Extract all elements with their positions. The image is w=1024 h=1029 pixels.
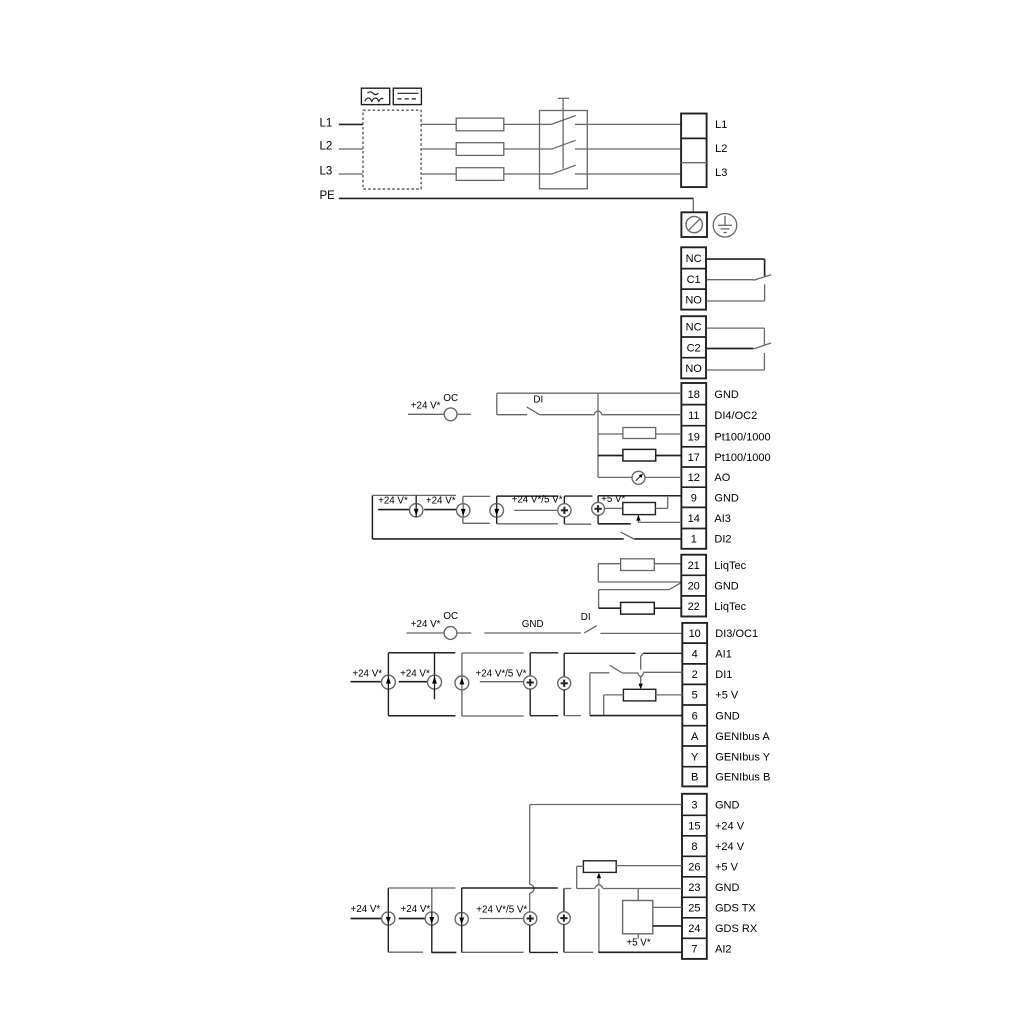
svg-text:2: 2 [692, 669, 698, 681]
svg-text:24: 24 [688, 923, 700, 935]
svg-text:20: 20 [688, 581, 700, 593]
svg-text:11: 11 [688, 410, 699, 422]
svg-text:+24 V*: +24 V* [426, 495, 456, 506]
svg-text:GDS TX: GDS TX [715, 903, 756, 915]
svg-text:3: 3 [691, 800, 697, 812]
svg-text:+24 V*: +24 V* [401, 904, 431, 915]
svg-text:Pt100/1000: Pt100/1000 [714, 452, 770, 464]
svg-text:+24 V*: +24 V* [400, 668, 430, 679]
svg-text:NC: NC [686, 322, 702, 334]
svg-text:DI3/OC1: DI3/OC1 [715, 628, 758, 640]
svg-text:DI: DI [533, 395, 543, 406]
svg-text:PE: PE [320, 190, 336, 202]
svg-text:AI1: AI1 [715, 649, 732, 661]
svg-text:GND: GND [714, 492, 739, 504]
svg-text:+24 V*/5 V*: +24 V*/5 V* [476, 668, 527, 679]
svg-text:NO: NO [685, 294, 702, 306]
svg-text:10: 10 [689, 628, 701, 640]
svg-text:8: 8 [691, 841, 697, 853]
svg-text:GND: GND [714, 389, 739, 401]
svg-text:Pt100/1000: Pt100/1000 [714, 431, 770, 443]
svg-text:DI: DI [581, 612, 591, 623]
svg-text:B: B [691, 772, 698, 784]
svg-text:+24 V*: +24 V* [411, 400, 441, 411]
svg-text:NO: NO [685, 363, 702, 375]
svg-text:GND: GND [714, 581, 739, 593]
svg-text:26: 26 [688, 862, 700, 874]
svg-text:+24 V*: +24 V* [378, 495, 408, 506]
svg-text:6: 6 [692, 710, 698, 722]
svg-text:14: 14 [688, 513, 700, 525]
svg-text:12: 12 [688, 472, 700, 484]
svg-text:L2: L2 [320, 141, 333, 153]
svg-text:GND: GND [715, 710, 740, 722]
svg-text:+5 V: +5 V [715, 862, 739, 874]
svg-text:GND: GND [715, 882, 740, 894]
svg-text:L1: L1 [715, 119, 727, 131]
svg-text:OC: OC [443, 611, 458, 622]
svg-text:AO: AO [714, 472, 730, 484]
svg-text:19: 19 [688, 431, 700, 443]
svg-text:+5 V: +5 V [715, 690, 739, 702]
svg-text:5: 5 [692, 690, 698, 702]
svg-text:+5 V*: +5 V* [626, 938, 650, 949]
svg-text:+24 V*: +24 V* [411, 619, 441, 630]
svg-text:C1: C1 [687, 274, 701, 286]
svg-text:1: 1 [691, 534, 697, 546]
svg-text:DI1: DI1 [715, 669, 732, 681]
svg-text:21: 21 [688, 560, 700, 572]
svg-text:C2: C2 [687, 342, 701, 354]
svg-text:7: 7 [691, 944, 697, 956]
svg-text:GDS RX: GDS RX [715, 923, 758, 935]
svg-text:LiqTec: LiqTec [714, 560, 746, 572]
svg-text:23: 23 [688, 882, 700, 894]
svg-text:4: 4 [692, 649, 698, 661]
svg-text:L2: L2 [715, 143, 727, 155]
svg-text:LiqTec: LiqTec [714, 601, 746, 613]
svg-text:+24 V*/5 V*: +24 V*/5 V* [476, 904, 527, 915]
svg-text:AI2: AI2 [715, 944, 732, 956]
svg-text:A: A [691, 731, 699, 743]
svg-text:NC: NC [686, 253, 702, 265]
svg-text:L3: L3 [715, 167, 727, 179]
svg-text:18: 18 [688, 389, 700, 401]
svg-text:DI2: DI2 [714, 534, 731, 546]
svg-text:25: 25 [688, 903, 700, 915]
svg-text:+24 V: +24 V [715, 841, 745, 853]
svg-text:9: 9 [691, 492, 697, 504]
svg-text:22: 22 [688, 601, 700, 613]
svg-text:DI4/OC2: DI4/OC2 [714, 410, 757, 422]
svg-text:L1: L1 [320, 118, 333, 130]
svg-text:17: 17 [688, 452, 700, 464]
svg-text:GND: GND [715, 800, 740, 812]
svg-text:L3: L3 [320, 165, 333, 177]
svg-text:Y: Y [691, 751, 699, 763]
svg-text:+24 V: +24 V [715, 821, 745, 833]
svg-text:+24 V*/5 V*: +24 V*/5 V* [512, 495, 563, 506]
svg-text:+24 V*: +24 V* [351, 904, 381, 915]
svg-text:15: 15 [688, 821, 700, 833]
svg-text:GENIbus B: GENIbus B [715, 772, 770, 784]
svg-text:+24 V*: +24 V* [352, 668, 382, 679]
svg-text:GND: GND [522, 619, 544, 630]
svg-text:OC: OC [443, 393, 458, 404]
svg-text:GENIbus Y: GENIbus Y [715, 751, 770, 763]
svg-text:GENIbus A: GENIbus A [715, 731, 770, 743]
svg-text:AI3: AI3 [714, 513, 731, 525]
